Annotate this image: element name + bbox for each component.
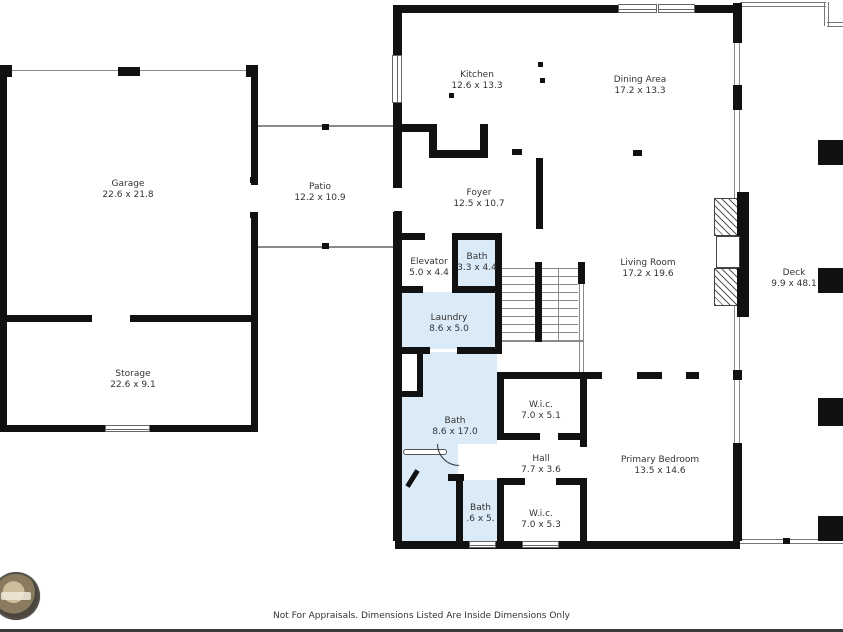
room-dims: 17.2 x 19.6 <box>588 269 708 280</box>
dimension-tick <box>540 78 545 83</box>
disclaimer-text: Not For Appraisals. Dimensions Listed Ar… <box>0 611 843 621</box>
room-dims: 12.6 x 13.3 <box>417 81 537 92</box>
room-label-laundry: Laundry 8.6 x 5.0 <box>389 313 509 335</box>
staircase-landing-line <box>502 340 583 342</box>
window-marker <box>618 4 657 13</box>
wall-segment <box>558 433 587 440</box>
room-dims: 8.6 x 17.0 <box>395 427 515 438</box>
dimension-tick <box>449 93 454 98</box>
window-marker <box>105 425 150 432</box>
dimension-tick <box>250 212 258 218</box>
room-name: Storage <box>73 369 193 380</box>
dimension-tick <box>322 243 329 249</box>
dimension-tick <box>633 150 642 156</box>
room-name: W.i.c. <box>481 400 601 411</box>
room-dims: 22.6 x 21.8 <box>68 190 188 201</box>
room-dims: 22.6 x 9.1 <box>73 380 193 391</box>
room-name: Foyer <box>419 188 539 199</box>
deck-post <box>818 398 843 426</box>
dimension-tick <box>322 124 329 130</box>
room-dims: 3.3 x 4.4 <box>447 263 507 274</box>
room-label-bath-upper: Bath 3.3 x 4.4 <box>447 252 507 274</box>
wall-segment <box>686 372 699 379</box>
room-label-deck: Deck 9.9 x 48.1 <box>754 268 834 290</box>
wall-segment <box>251 213 258 432</box>
wall-segment <box>456 474 463 541</box>
room-label-wic-2: W.i.c. 7.0 x 5.3 <box>481 509 601 531</box>
wall-segment <box>251 65 258 185</box>
room-label-living: Living Room 17.2 x 19.6 <box>588 258 708 280</box>
room-label-primary: Primary Bedroom 13.5 x 14.6 <box>600 455 720 477</box>
fireplace-box <box>716 236 740 268</box>
window-marker <box>522 541 559 548</box>
kitchen-counter <box>480 124 488 158</box>
room-dims: 7.0 x 5.3 <box>481 520 601 531</box>
dimension-tick <box>512 149 522 155</box>
room-label-wic-1: W.i.c. 7.0 x 5.1 <box>481 400 601 422</box>
room-label-storage: Storage 22.6 x 9.1 <box>73 369 193 391</box>
room-label-kitchen: Kitchen 12.6 x 13.3 <box>417 70 537 92</box>
wall-segment <box>535 262 542 342</box>
closet-wall <box>400 391 417 397</box>
window-marker <box>658 4 695 13</box>
wall-segment <box>395 541 740 549</box>
room-dims: 7.7 x 3.6 <box>481 465 601 476</box>
wall-segment <box>556 478 587 485</box>
room-dims: 7.0 x 5.1 <box>481 411 601 422</box>
room-dims: 12.2 x 10.9 <box>260 193 380 204</box>
wall-segment <box>637 372 662 379</box>
wall-segment <box>497 478 525 485</box>
wall-segment <box>733 85 742 110</box>
dimension-tick <box>783 538 790 544</box>
room-name: Laundry <box>389 313 509 324</box>
wall-segment <box>118 67 140 76</box>
wall-segment <box>130 315 258 322</box>
deck-post <box>818 140 843 165</box>
room-label-hall: Hall 7.7 x 3.6 <box>481 454 601 476</box>
deck-rail <box>740 2 826 7</box>
wall-segment <box>452 233 498 240</box>
wall-segment <box>733 370 742 380</box>
room-name: W.i.c. <box>481 509 601 520</box>
dimension-tick <box>394 211 402 217</box>
room-name: Hall <box>481 454 601 465</box>
floor-plan: Garage 22.6 x 21.8 Storage 22.6 x 9.1 Pa… <box>0 0 843 632</box>
wall-segment <box>578 262 585 284</box>
closet-wall <box>417 354 423 397</box>
room-name: Dining Area <box>580 75 700 86</box>
bath-closet-nook <box>402 354 417 391</box>
window-marker <box>392 55 402 103</box>
room-name: Bath <box>447 252 507 263</box>
deck-rail <box>827 22 843 27</box>
room-name: Primary Bedroom <box>600 455 720 466</box>
room-dims: 17.2 x 13.3 <box>580 86 700 97</box>
dimension-tick <box>538 62 543 67</box>
wall-segment <box>402 233 425 240</box>
room-dims: 13.5 x 14.6 <box>600 466 720 477</box>
room-name: Kitchen <box>417 70 537 81</box>
deck-post <box>818 516 843 541</box>
wall-segment <box>0 315 92 322</box>
dimension-tick <box>394 181 402 187</box>
room-label-foyer: Foyer 12.5 x 10.7 <box>419 188 539 210</box>
wall-segment <box>733 3 742 43</box>
wall-segment <box>733 443 742 541</box>
room-label-patio: Patio 12.2 x 10.9 <box>260 182 380 204</box>
wall-segment <box>395 286 423 293</box>
wall-segment <box>395 5 620 13</box>
stair-rail-line <box>583 284 584 372</box>
wall-segment <box>393 103 402 188</box>
wall-segment <box>457 347 502 354</box>
room-name: Patio <box>260 182 380 193</box>
window-marker <box>469 541 496 548</box>
room-dims: 8.6 x 5.0 <box>389 324 509 335</box>
room-name: Living Room <box>588 258 708 269</box>
room-dims: 9.9 x 48.1 <box>754 279 834 290</box>
stair-rail-line <box>579 284 580 372</box>
wall-segment <box>400 347 430 354</box>
staircase-divider <box>558 268 559 342</box>
wall-segment <box>393 5 402 55</box>
dimension-tick <box>250 177 258 183</box>
room-dims: 12.5 x 10.7 <box>419 199 539 210</box>
wall-segment <box>0 65 7 432</box>
room-name: Garage <box>68 179 188 190</box>
room-name: Deck <box>754 268 834 279</box>
room-label-dining: Dining Area 17.2 x 13.3 <box>580 75 700 97</box>
room-label-garage: Garage 22.6 x 21.8 <box>68 179 188 201</box>
